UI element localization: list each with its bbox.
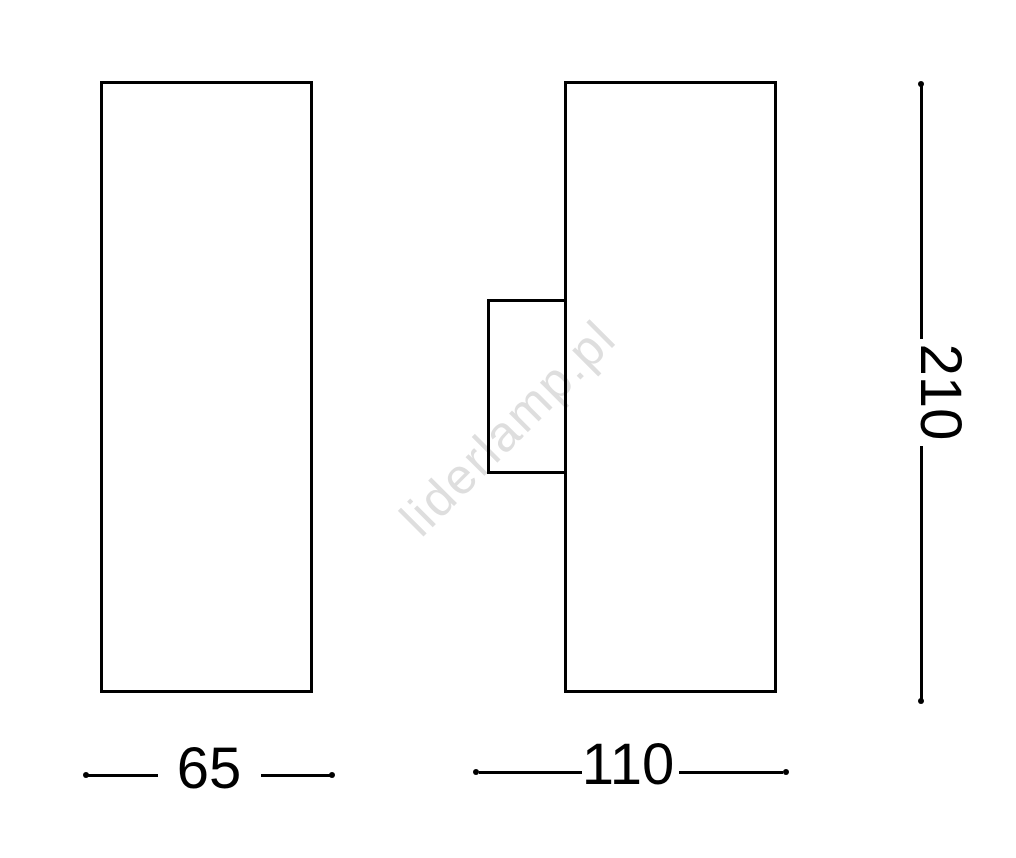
- front-view-rect: [100, 81, 313, 693]
- drawing-layer: 65 110 210: [0, 0, 1016, 858]
- height-label: 210: [911, 344, 969, 441]
- dimension-line: [920, 446, 923, 700]
- dimension-line: [86, 774, 158, 777]
- dimension-line: [679, 771, 783, 774]
- dimension-endpoint-dot: [918, 698, 924, 704]
- side-view-rect: [564, 81, 777, 693]
- dimension-line: [920, 86, 923, 339]
- side-width-label: 110: [582, 736, 674, 794]
- wall-bracket-rect: [487, 299, 567, 474]
- dimension-endpoint-dot: [329, 772, 335, 778]
- front-width-label: 65: [177, 740, 242, 798]
- dimension-line: [261, 774, 332, 777]
- dimension-line: [479, 771, 582, 774]
- technical-drawing-canvas: liderlamp.pl 65 110 210: [0, 0, 1016, 858]
- dimension-endpoint-dot: [783, 769, 789, 775]
